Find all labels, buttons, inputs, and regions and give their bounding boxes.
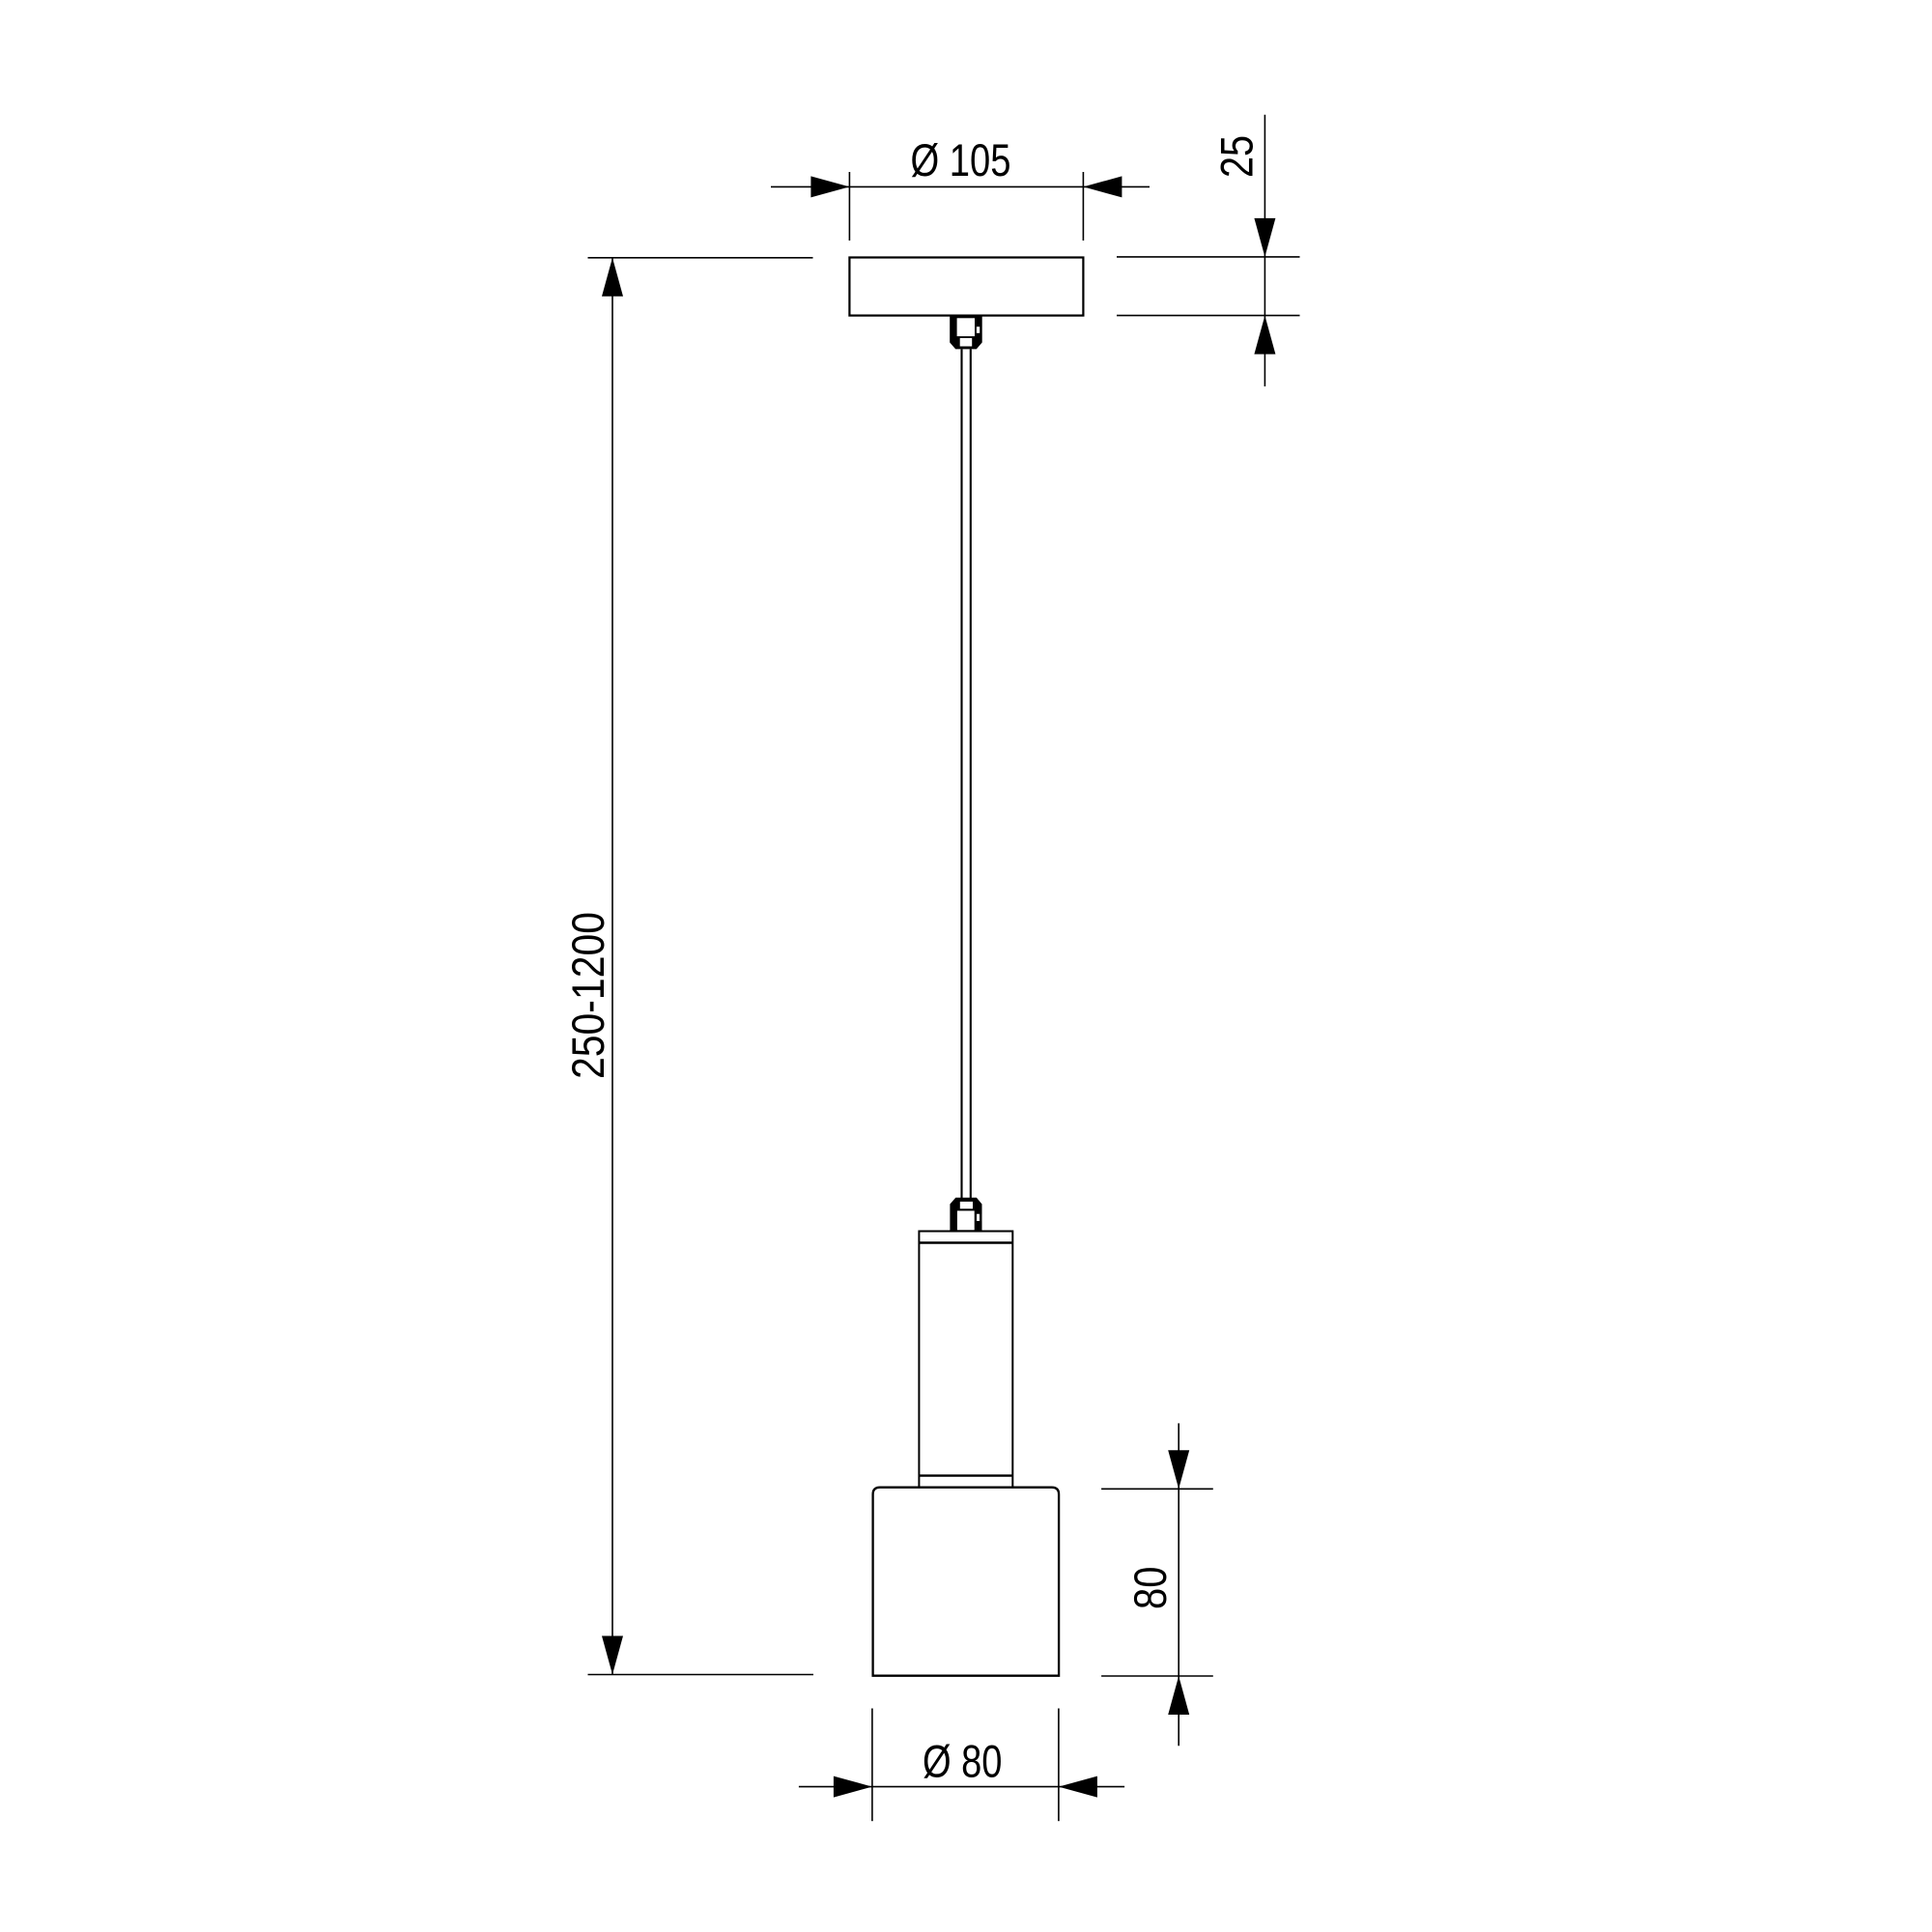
svg-text:Ø 80: Ø 80 <box>923 1736 1003 1787</box>
svg-text:250-1200: 250-1200 <box>562 912 613 1079</box>
svg-text:25: 25 <box>1211 135 1263 178</box>
svg-text:Ø 105: Ø 105 <box>911 134 1011 185</box>
svg-text:80: 80 <box>1124 1566 1176 1609</box>
